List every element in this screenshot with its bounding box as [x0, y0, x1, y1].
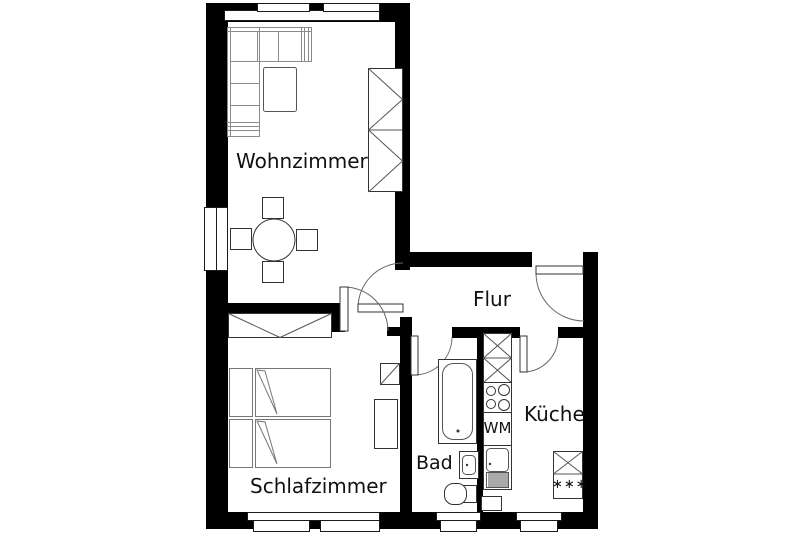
shelf [381, 364, 400, 385]
drain [457, 430, 460, 433]
toilet [445, 484, 477, 505]
door-leaf [536, 266, 583, 274]
washbasin [460, 452, 479, 479]
drain [466, 464, 468, 466]
dining-chair [231, 229, 252, 250]
entrance-door [536, 266, 584, 321]
door-arc [358, 263, 403, 308]
floor-plan: Wohnzimmer Schlafzimmer Flur Bad Küche W… [0, 0, 800, 534]
burner [499, 385, 510, 396]
toilet-bowl [445, 484, 467, 505]
dining-chair [263, 198, 284, 219]
door-arc [523, 337, 558, 372]
room-label-bad: Bad [416, 452, 453, 474]
door-arc [536, 273, 584, 321]
pillow [230, 420, 253, 468]
double-bed [230, 369, 331, 468]
fixtures-layer [0, 0, 800, 534]
burner [487, 387, 496, 396]
door-leaf [411, 336, 418, 375]
radiator [482, 497, 502, 511]
wohnzimmer-flur-door [358, 263, 403, 312]
stove [484, 383, 512, 413]
dining-chair [297, 230, 318, 251]
bathtub [439, 360, 477, 444]
freezer-stars-label: ∗∗∗ [552, 477, 583, 492]
drain [489, 463, 491, 465]
room-label-kueche: Küche [524, 402, 585, 426]
room-label-schlafzimmer: Schlafzimmer [250, 474, 387, 498]
tall-cabinet [484, 334, 512, 383]
kitchen-sink [484, 446, 512, 490]
door-leaf [520, 336, 527, 372]
wardrobe [229, 314, 332, 338]
burner [499, 400, 510, 411]
wall-unit [369, 69, 403, 193]
room-label-wohnzimmer: Wohnzimmer [236, 149, 368, 173]
washing-machine-label: WM [483, 419, 512, 437]
dining-table [253, 219, 295, 261]
coffee-table [264, 68, 297, 112]
dining-set [231, 198, 318, 283]
room-label-flur: Flur [473, 287, 511, 311]
door-leaf [340, 287, 348, 331]
kueche-door [520, 336, 558, 372]
dining-chair [263, 262, 284, 283]
nightstand [375, 400, 398, 449]
pillow [230, 369, 253, 417]
door-leaf [358, 304, 403, 312]
burner [487, 400, 496, 409]
